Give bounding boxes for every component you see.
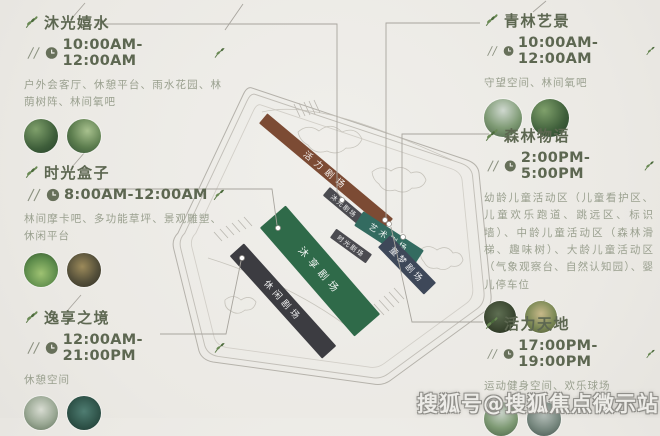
section-title-row: 沐光嬉水 [24, 12, 226, 33]
clock-icon [504, 159, 517, 173]
clock-icon [503, 347, 514, 361]
section-time: 10:00AM-12:00AM [518, 35, 641, 67]
leaf-icon [24, 310, 39, 325]
theater-bar-label: 时光剧场 [335, 233, 366, 259]
theater-bar-label: 休闲剧场 [261, 278, 305, 325]
section-title-row: 时光盒子 [24, 162, 226, 183]
clock-icon [503, 44, 514, 58]
section-muguang-xishui: 沐光嬉水 10:00AM-12:00AM 户外会客厅、休憩平台、雨水花园、林荫树… [24, 12, 226, 153]
section-photos [24, 253, 226, 287]
section-description: 守望空间、林间氧吧 [484, 75, 654, 92]
leaf-icon [212, 188, 226, 202]
section-time: 8:00AM-12:00AM [64, 187, 208, 203]
clock-icon [46, 188, 60, 202]
section-description: 休憩空间 [24, 372, 222, 389]
theater-bar-label: 活力剧场 [301, 148, 352, 193]
section-time: 10:00AM-12:00AM [62, 37, 208, 69]
double-slash-icon [486, 44, 499, 58]
photo-thumbnail [24, 119, 58, 153]
photo-thumbnail [67, 396, 101, 430]
photo-thumbnail [67, 253, 101, 287]
section-title: 沐光嬉水 [44, 12, 110, 33]
section-title: 逸享之境 [44, 307, 110, 328]
section-description: 户外会客厅、休憩平台、雨水花园、林荫树阵、林间氧吧 [24, 77, 222, 112]
leaf-icon [643, 159, 656, 173]
leaf-icon [484, 316, 499, 331]
section-time-row: 10:00AM-12:00AM [26, 37, 226, 69]
section-time: 17:00PM-19:00PM [518, 338, 641, 370]
section-time-row: 17:00PM-19:00PM [486, 338, 656, 370]
section-title: 时光盒子 [44, 162, 110, 183]
leaf-icon [213, 341, 226, 355]
section-time-row: 8:00AM-12:00AM [26, 187, 226, 203]
section-title: 活力天地 [504, 313, 570, 334]
clock-icon [45, 341, 58, 355]
section-time-row: 12:00AM-21:00PM [26, 332, 226, 364]
leaf-icon [484, 13, 499, 28]
leaf-icon [645, 347, 656, 361]
section-time: 12:00AM-21:00PM [63, 332, 209, 364]
leaf-icon [484, 128, 499, 143]
leaf-icon [24, 15, 39, 30]
double-slash-icon [486, 159, 500, 173]
section-time-row: 2:00PM-5:00PM [486, 150, 656, 182]
photo-thumbnail [24, 396, 58, 430]
double-slash-icon [486, 347, 499, 361]
section-title-row: 活力天地 [484, 313, 656, 334]
section-qinglin-yijing: 青林艺景 10:00AM-12:00AM 守望空间、林间氧吧 [484, 10, 656, 137]
section-title: 森林物语 [504, 125, 570, 146]
section-time-row: 10:00AM-12:00AM [486, 35, 656, 67]
section-description: 幼龄儿童活动区（儿童看护区、儿童欢乐跑道、跳远区、标识墙）、中龄儿童活动区（森林… [484, 190, 654, 294]
section-yixiang-zhijing: 逸享之境 12:00AM-21:00PM 休憩空间 [24, 307, 226, 430]
leaf-icon [24, 165, 39, 180]
double-slash-icon [26, 341, 41, 355]
leaf-icon [645, 44, 656, 58]
section-shiguang-hezi: 时光盒子 8:00AM-12:00AM 林间摩卡吧、多功能草坪、景观雕塑、休闲平… [24, 162, 226, 287]
sohu-watermark: 搜狐号@搜狐焦点微示站 [417, 388, 659, 418]
section-photos [24, 396, 226, 430]
section-title-row: 逸享之境 [24, 307, 226, 328]
theater-bar-shiguang: 时光剧场 [330, 229, 372, 264]
section-senlin-wuyu: 森林物语 2:00PM-5:00PM 幼龄儿童活动区（儿童看护区、儿童欢乐跑道、… [484, 125, 656, 333]
clock-icon [45, 46, 58, 60]
section-time: 2:00PM-5:00PM [521, 150, 640, 182]
section-photos [24, 119, 226, 153]
section-title-row: 青林艺景 [484, 10, 656, 31]
section-title-row: 森林物语 [484, 125, 656, 146]
leaf-icon [213, 46, 226, 60]
section-title: 青林艺景 [504, 10, 570, 31]
photo-thumbnail [24, 253, 58, 287]
double-slash-icon [26, 188, 42, 202]
double-slash-icon [26, 46, 41, 60]
section-description: 林间摩卡吧、多功能草坪、景观雕塑、休闲平台 [24, 211, 222, 246]
photo-thumbnail [67, 119, 101, 153]
